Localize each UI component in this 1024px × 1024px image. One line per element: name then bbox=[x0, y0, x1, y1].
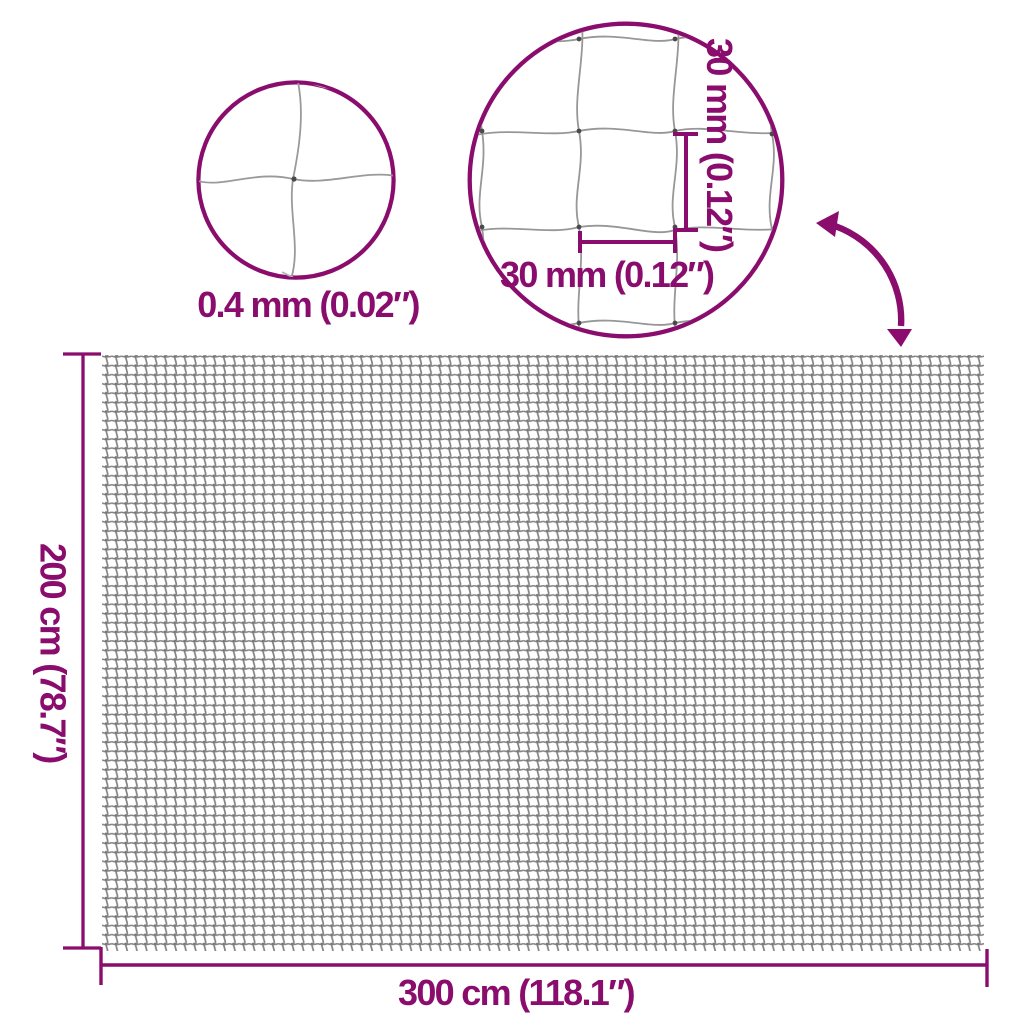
svg-text:300 cm (118.1″): 300 cm (118.1″) bbox=[398, 972, 635, 1013]
svg-text:30 mm (0.12″): 30 mm (0.12″) bbox=[500, 254, 714, 295]
svg-text:200 cm (78.7″): 200 cm (78.7″) bbox=[33, 543, 74, 763]
svg-text:30 mm (0.12″): 30 mm (0.12″) bbox=[699, 38, 740, 252]
svg-text:0.4 mm (0.02″): 0.4 mm (0.02″) bbox=[197, 284, 419, 325]
